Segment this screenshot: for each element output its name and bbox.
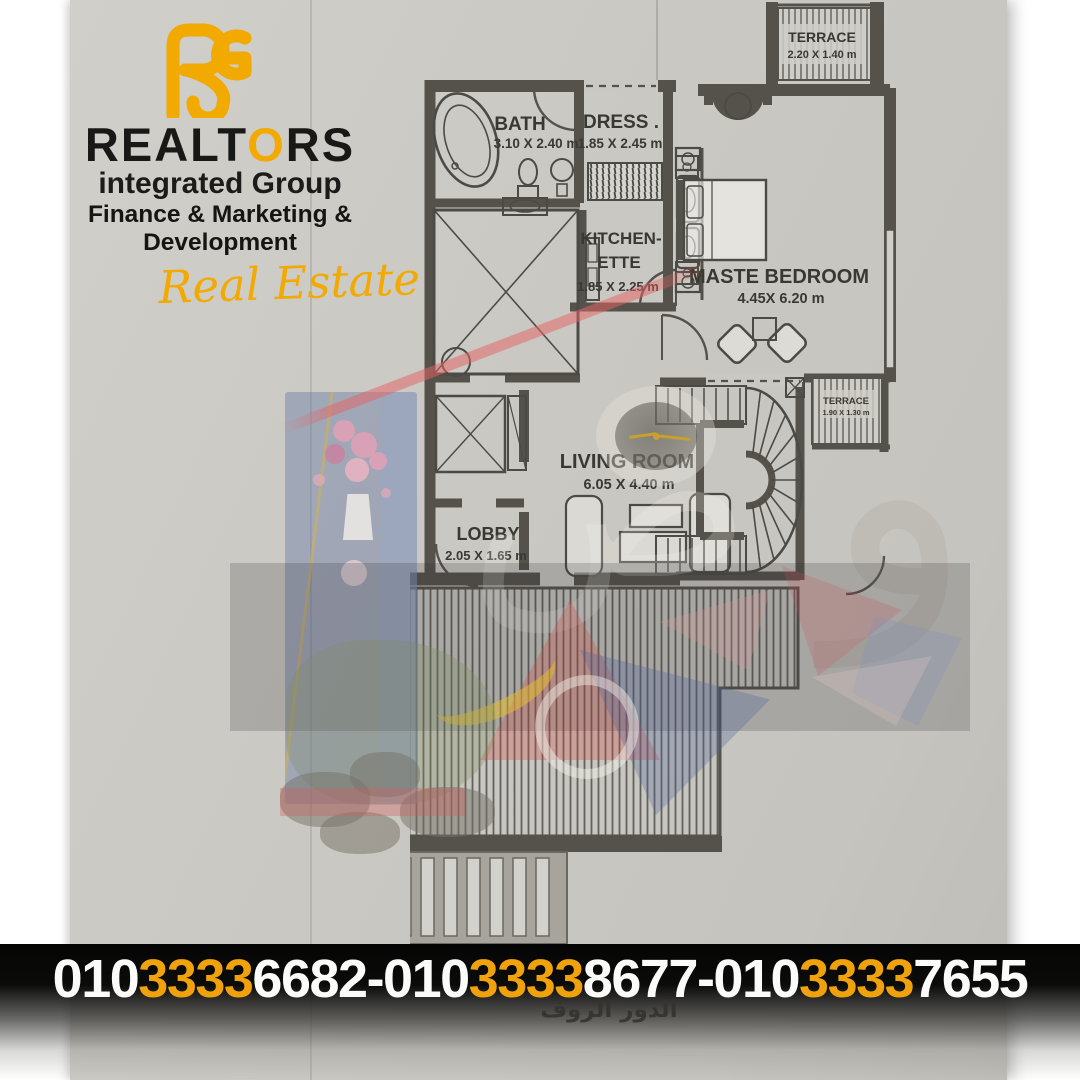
shaft-room-large: [434, 210, 578, 376]
company-logo-block: REALTORS integrated Group Finance & Mark…: [20, 18, 420, 311]
wardrobe: [588, 163, 662, 200]
phone-3-suffix: 7655: [913, 949, 1027, 1009]
collage-white-swirl: [535, 675, 639, 779]
monogram-g-shape: [218, 36, 245, 74]
collage-vase: [343, 494, 373, 540]
toilet: [518, 159, 538, 198]
phone-1-accent: 3333: [138, 949, 252, 1009]
brand-tagline: Finance & Marketing & Development: [20, 201, 420, 257]
room-dims-terrace-top: 2.20 X 1.40 m: [787, 49, 856, 61]
phone-3-accent: 3333: [799, 949, 913, 1009]
collage-butterfly: [381, 488, 391, 498]
bottom-stairs: [410, 852, 567, 944]
phone-2-prefix: 010: [383, 949, 469, 1009]
room-label-bath: BATH: [494, 114, 545, 135]
watermark-collage-right: [772, 556, 968, 732]
room-label-kitchenette-2: ETTE: [597, 253, 640, 272]
brand-part-1: REALT: [85, 118, 247, 171]
collage-flower: [369, 452, 387, 470]
bed: [676, 180, 766, 260]
brand-script-realestate: Real Estate: [19, 254, 421, 318]
phone-1-prefix: 010: [53, 949, 139, 1009]
phone-1-suffix: 6682: [252, 949, 366, 1009]
bedroom-table-set: [704, 90, 772, 120]
brand-name: REALTORS: [20, 123, 420, 167]
phone-separator: -: [697, 949, 713, 1009]
brand-part-2: RS: [286, 118, 355, 171]
room-dims-master-bedroom: 4.45X 6.20 m: [737, 291, 824, 307]
room-dims-bath: 3.10 X 2.40 m: [494, 136, 579, 151]
clock-center-dot: [653, 433, 660, 440]
clock-watermark: [615, 402, 697, 470]
brand-subtitle: integrated Group: [20, 167, 420, 201]
room-label-dress: DRESS .: [583, 112, 659, 133]
phone-3-prefix: 010: [713, 949, 799, 1009]
arabic-caption-roof-floor: الدور الروف: [535, 997, 683, 1023]
collage-pink-shape: [660, 590, 770, 670]
watermark-red-band: [280, 788, 465, 816]
collage-butterfly: [313, 474, 325, 486]
rg-monogram-logo: [153, 18, 257, 118]
room-dims-dress: 1.85 X 2.45 m: [578, 136, 663, 151]
room-label-terrace-top: TERRACE: [788, 29, 856, 45]
room-label-master-bedroom: MASTE BEDROOM: [689, 266, 869, 288]
room-label-kitchenette-1: KITCHEN-: [580, 229, 661, 248]
bath-sink: [551, 159, 573, 196]
monogram-loop-shape: [187, 70, 224, 118]
collage-flower: [345, 458, 369, 482]
collage-flower: [325, 444, 345, 464]
phone-separator: -: [367, 949, 383, 1009]
brand-accent-letter: O: [247, 118, 286, 171]
clock-minute-hand: [655, 434, 691, 440]
